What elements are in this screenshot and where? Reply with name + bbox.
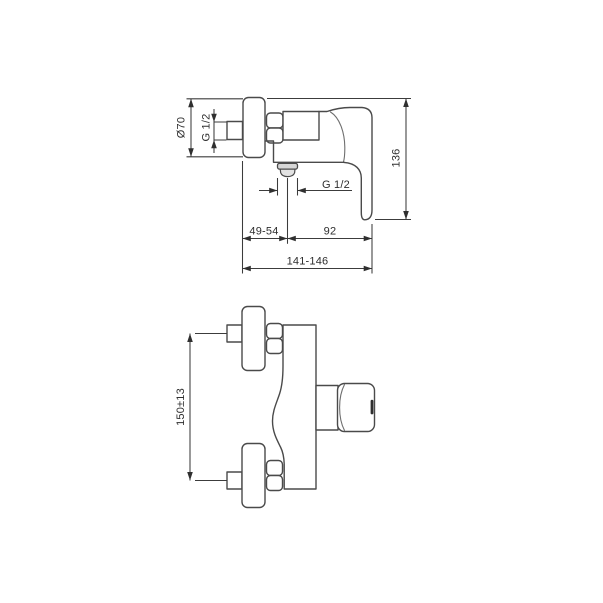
hex-nut-upper-band1	[267, 324, 283, 339]
side-view-faucet	[227, 98, 372, 220]
body-underside	[266, 141, 345, 162]
outlet-lip	[278, 163, 298, 169]
arrowhead	[187, 334, 193, 343]
side-view: Ø70 G 1/2 136 G 1/2	[176, 98, 412, 274]
dim-label-wall-to-outlet: 49-54	[249, 226, 278, 238]
arrowhead	[188, 148, 194, 157]
dim-total-depth: 141-146	[243, 256, 373, 272]
dim-label-outlet-thread: G 1/2	[322, 179, 350, 191]
inlet-thread-lower	[227, 472, 242, 489]
handle-lever	[319, 108, 372, 220]
plan-view: 150±13	[175, 307, 375, 508]
hex-nut-upper-band2	[267, 339, 283, 354]
dim-inlet-thread: G 1/2	[201, 109, 227, 153]
hex-nut-lower-band1	[267, 461, 283, 476]
arrowhead	[188, 99, 194, 108]
arrowhead	[243, 266, 251, 272]
faucet-dimension-drawing: Ø70 G 1/2 136 G 1/2	[0, 0, 603, 603]
dim-label-connection-spacing: 150±13	[175, 388, 187, 426]
technical-drawing-page: Ø70 G 1/2 136 G 1/2	[0, 0, 603, 603]
inlet-thread	[227, 122, 243, 140]
dim-label-outlet-to-front: 92	[324, 226, 337, 238]
dim-label-total-height: 136	[391, 149, 403, 168]
arrowhead	[288, 236, 296, 242]
arrowhead	[298, 188, 306, 194]
inlet-thread-upper	[227, 325, 242, 342]
arrowhead	[364, 236, 372, 242]
arrowhead	[269, 188, 277, 194]
cartridge-neck	[316, 386, 338, 431]
dim-connection-spacing: 150±13	[175, 334, 227, 481]
mixer-body-block	[283, 112, 319, 141]
dim-label-flange-diameter: Ø70	[176, 117, 188, 138]
arrowhead	[279, 236, 287, 242]
hex-nut-lower-band2	[267, 476, 283, 491]
plan-view-faucet	[227, 307, 375, 508]
hex-nut-band-top	[267, 113, 284, 128]
handle-cap	[338, 384, 375, 432]
handle-pin	[371, 400, 374, 415]
dim-label-total-depth: 141-146	[287, 256, 329, 268]
cap-skirt-curve	[331, 112, 345, 162]
outlet-nozzle	[280, 169, 295, 177]
arrowhead	[364, 266, 372, 272]
arrowhead	[187, 472, 193, 481]
arrowhead	[403, 211, 409, 220]
wall-flange	[243, 98, 265, 158]
wall-flange-lower	[242, 444, 265, 508]
arrowhead	[403, 99, 409, 108]
wall-flange-upper	[242, 307, 265, 371]
dim-label-inlet-thread: G 1/2	[201, 114, 213, 142]
